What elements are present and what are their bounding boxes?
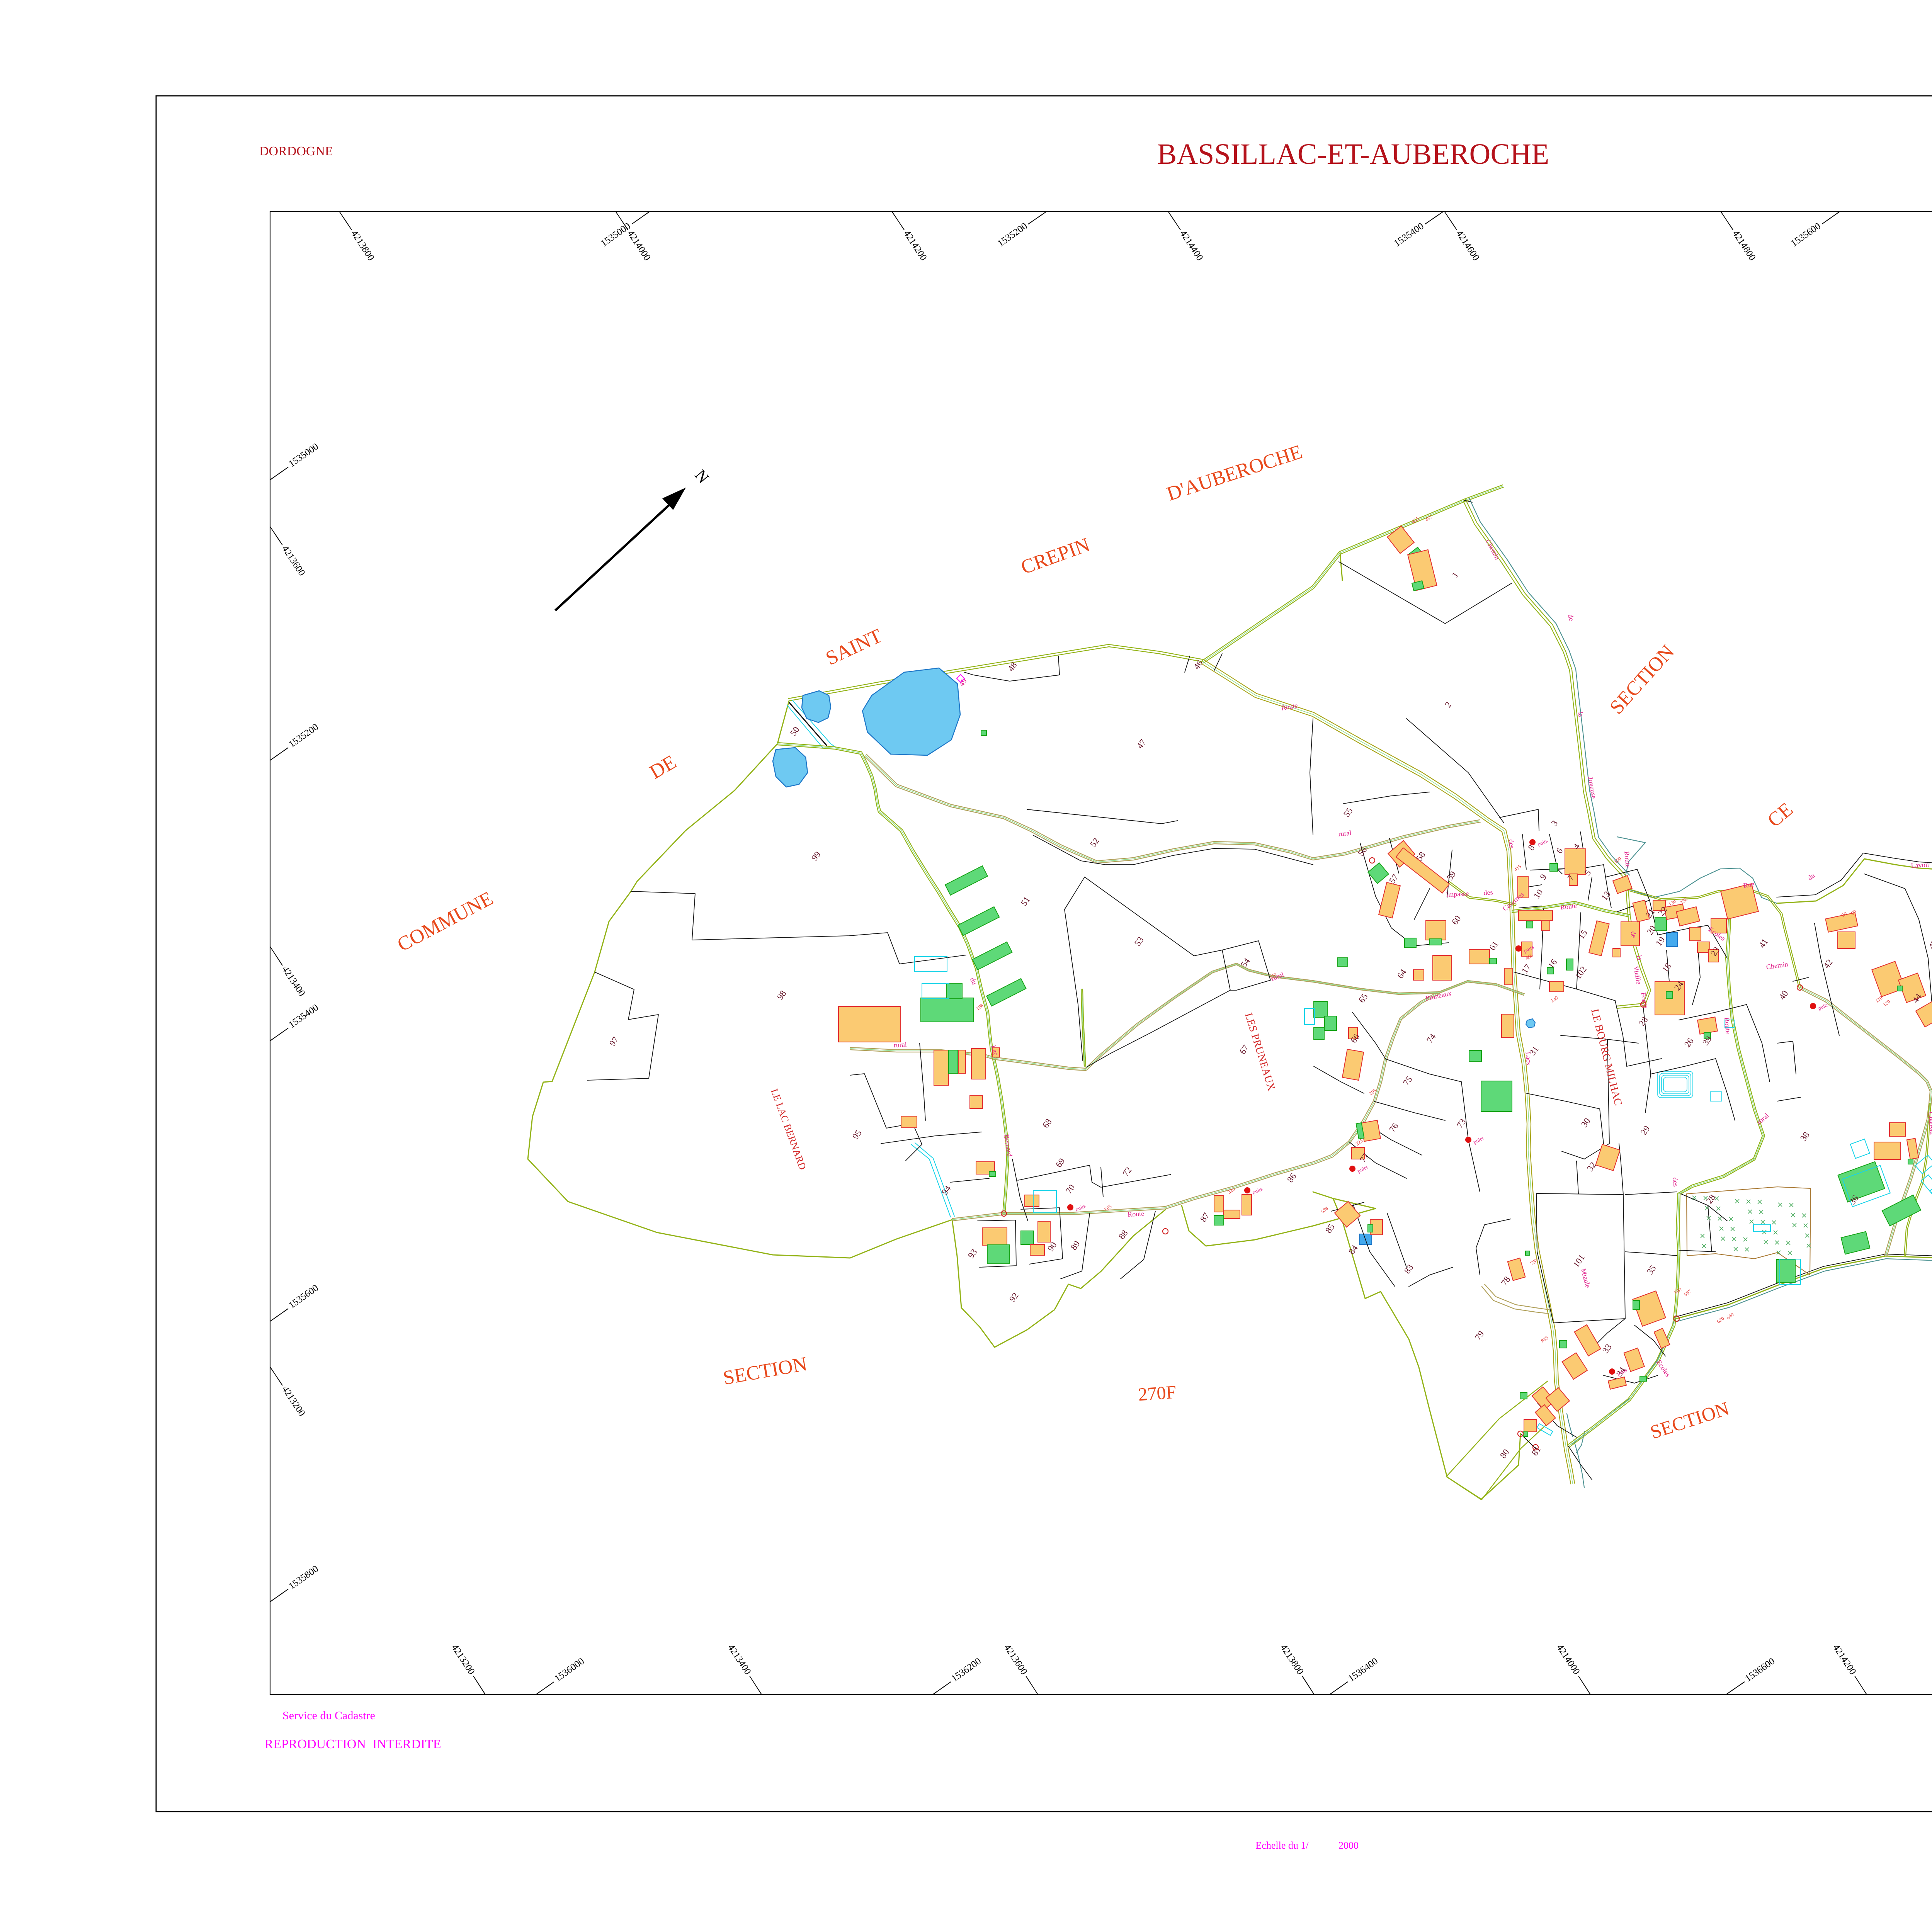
svg-text:rural: rural	[1338, 829, 1352, 838]
svg-text:des: des	[1671, 1177, 1680, 1187]
svg-text:rural: rural	[893, 1040, 907, 1049]
svg-text:Route: Route	[1623, 851, 1632, 868]
svg-text:Route: Route	[1128, 1210, 1145, 1218]
svg-text:Route: Route	[1723, 1017, 1732, 1034]
svg-text:Lavoir: Lavoir	[1911, 860, 1930, 869]
svg-text:REPRODUCTION INTERDITE: REPRODUCTION INTERDITE	[264, 1737, 441, 1751]
svg-text:Echelle du 1/: Echelle du 1/	[1255, 1840, 1309, 1851]
svg-text:des: des	[1483, 888, 1493, 897]
svg-text:de: de	[1629, 931, 1638, 938]
svg-text:BASSILLAC-ET-AUBEROCHE: BASSILLAC-ET-AUBEROCHE	[1157, 138, 1549, 170]
svg-text:2000: 2000	[1338, 1840, 1359, 1851]
svg-text:des: des	[1507, 839, 1516, 849]
svg-text:DORDOGNE: DORDOGNE	[259, 144, 333, 158]
svg-text:Impasse: Impasse	[1446, 889, 1469, 898]
svg-text:270F: 270F	[1138, 1382, 1177, 1405]
svg-text:Service du Cadastre: Service du Cadastre	[282, 1709, 375, 1722]
